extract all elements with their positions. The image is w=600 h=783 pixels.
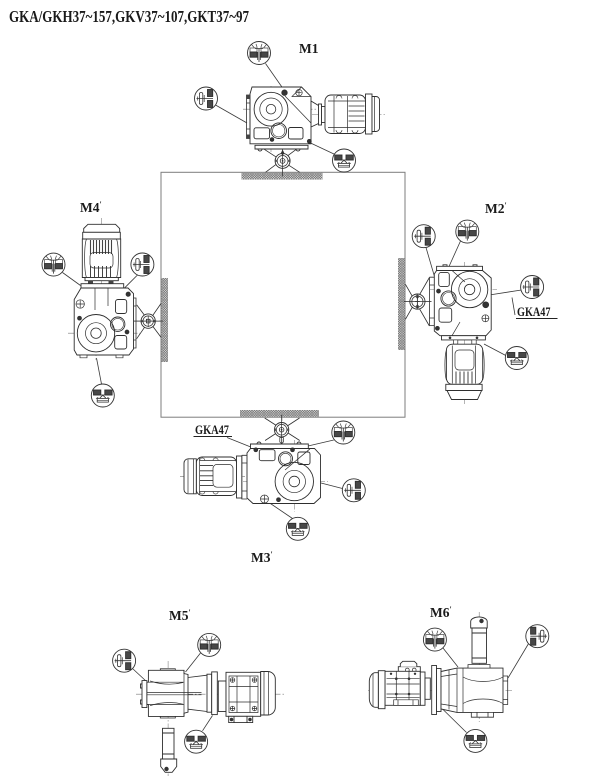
svg-text:GKA/GKH37~157,GKV37~107,GKT37~: GKA/GKH37~157,GKV37~107,GKT37~97 [9,7,249,26]
svg-text:GKA47: GKA47 [517,304,551,319]
svg-text:M6': M6' [430,605,452,620]
svg-text:M5': M5' [169,608,191,623]
svg-text:M4': M4' [80,200,102,215]
svg-text:GKA47: GKA47 [195,422,229,437]
svg-text:M3': M3' [251,550,273,565]
svg-text:M1: M1 [299,41,319,56]
svg-text:M2': M2' [485,201,507,216]
